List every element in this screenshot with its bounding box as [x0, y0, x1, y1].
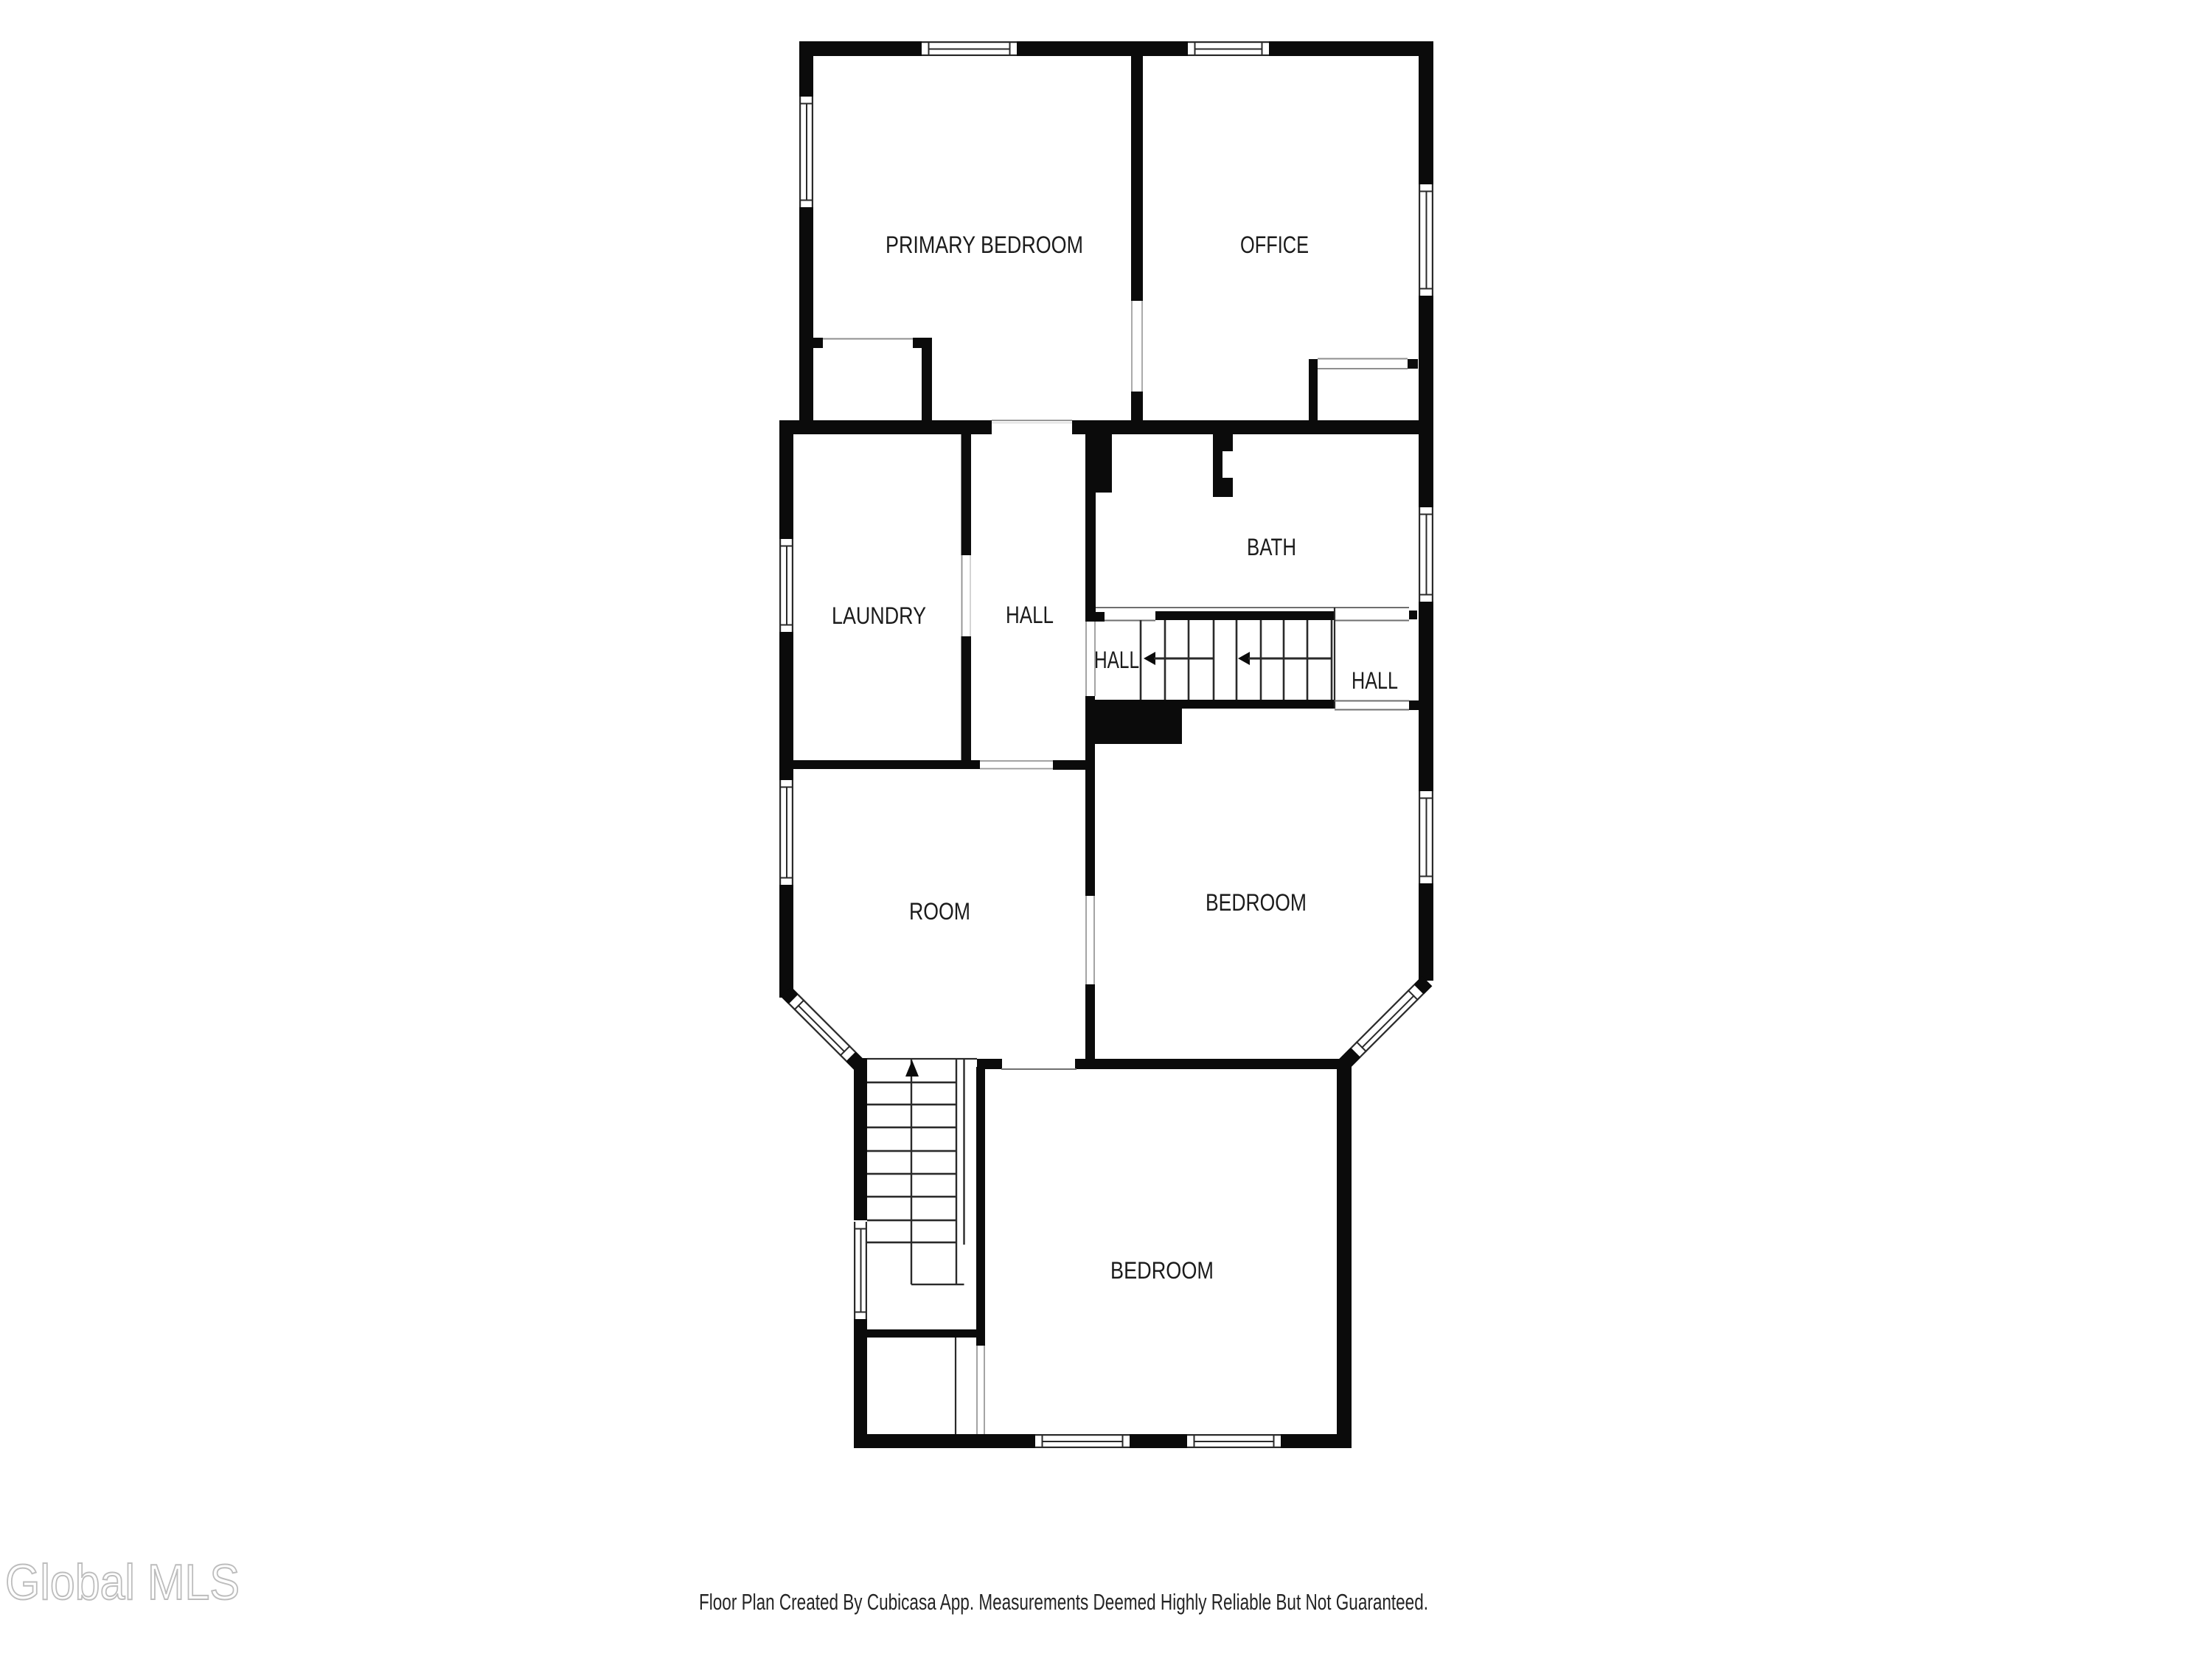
svg-text:BATH: BATH — [1247, 534, 1296, 560]
svg-text:BEDROOM: BEDROOM — [1110, 1257, 1214, 1284]
svg-text:Floor Plan Created By Cubicasa: Floor Plan Created By Cubicasa App. Meas… — [699, 1589, 1428, 1615]
svg-text:HALL: HALL — [1352, 667, 1398, 694]
svg-text:LAUNDRY: LAUNDRY — [832, 602, 926, 629]
svg-text:PRIMARY BEDROOM: PRIMARY BEDROOM — [886, 232, 1083, 258]
svg-text:HALL: HALL — [1006, 602, 1054, 628]
svg-text:ROOM: ROOM — [909, 898, 970, 925]
svg-text:Global MLS: Global MLS — [5, 1554, 240, 1610]
svg-text:OFFICE: OFFICE — [1240, 232, 1309, 258]
svg-text:HALL: HALL — [1094, 647, 1139, 673]
svg-text:BEDROOM: BEDROOM — [1206, 889, 1307, 916]
